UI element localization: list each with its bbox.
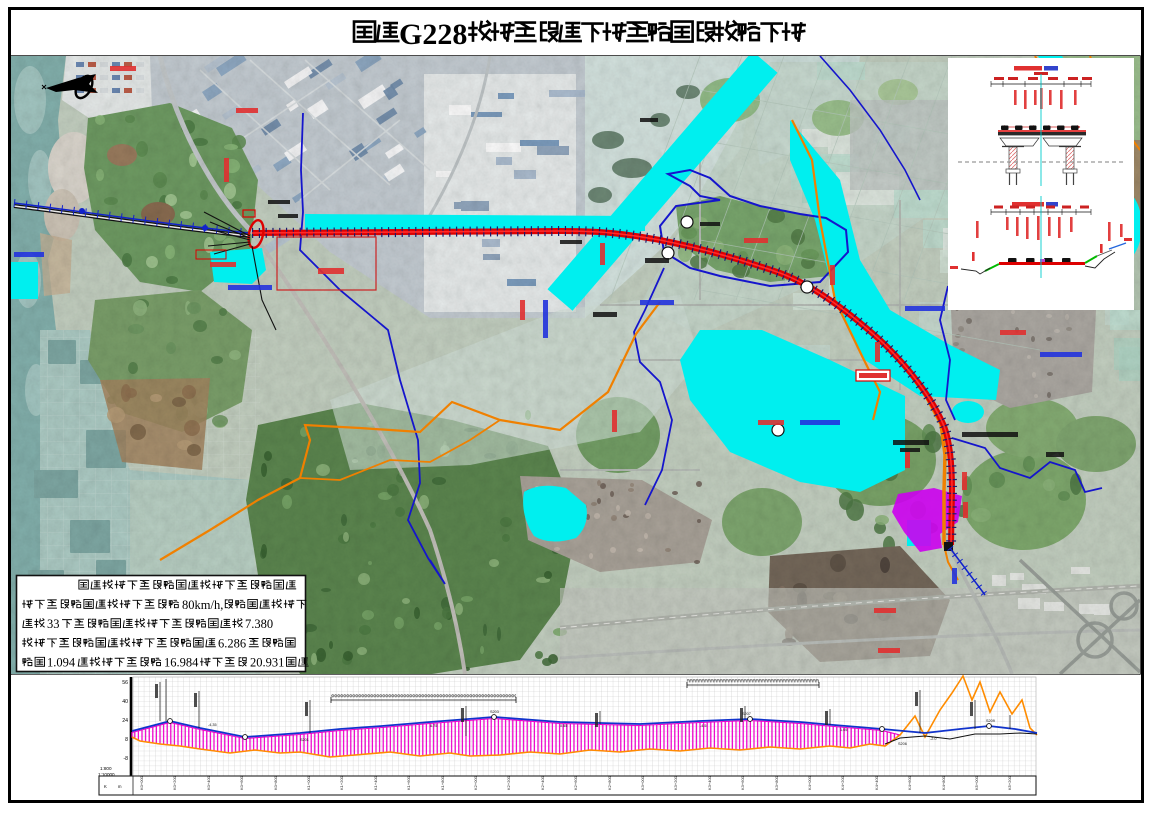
- svg-text:K1+600: K1+600: [406, 775, 411, 790]
- svg-text:K1+800: K1+800: [440, 775, 445, 790]
- svg-text:K5+200: K5+200: [1007, 775, 1012, 790]
- svg-text:S203: S203: [490, 710, 499, 714]
- svg-text:S201: S201: [300, 738, 309, 742]
- svg-text:K4+400: K4+400: [874, 775, 879, 790]
- svg-text:K4+800: K4+800: [941, 775, 946, 790]
- svg-text:-2.0: -2.0: [930, 737, 937, 741]
- svg-text:-8: -8: [123, 756, 128, 762]
- svg-text:K0+800: K0+800: [273, 775, 278, 790]
- svg-text:33: 33: [47, 617, 60, 631]
- svg-text:56: 56: [122, 680, 128, 686]
- svg-text:7.380: 7.380: [245, 617, 273, 631]
- svg-text:K2+400: K2+400: [540, 775, 545, 790]
- svg-text:K: K: [104, 784, 107, 789]
- svg-text:40: 40: [122, 699, 128, 705]
- svg-text:K0+000: K0+000: [139, 775, 144, 790]
- svg-text:m: m: [118, 784, 122, 789]
- svg-text:K2+800: K2+800: [607, 775, 612, 790]
- svg-text:S206: S206: [898, 742, 907, 746]
- svg-text:K0+200: K0+200: [172, 775, 177, 790]
- svg-text:K2+000: K2+000: [473, 775, 478, 790]
- svg-text:80km/h,: 80km/h,: [182, 598, 223, 612]
- svg-text:K5+000: K5+000: [974, 775, 979, 790]
- svg-text:6.286: 6.286: [218, 636, 246, 650]
- svg-text:K3+200: K3+200: [673, 775, 678, 790]
- svg-text:K0+600: K0+600: [239, 775, 244, 790]
- svg-text:6.75: 6.75: [430, 724, 437, 728]
- svg-text:K2+600: K2+600: [573, 775, 578, 790]
- svg-text:8: 8: [125, 737, 128, 743]
- svg-text:20.931: 20.931: [250, 656, 284, 670]
- svg-text:K3+400: K3+400: [707, 775, 712, 790]
- svg-text:S209: S209: [986, 719, 995, 723]
- svg-text:G228: G228: [399, 18, 467, 51]
- svg-text:K1+400: K1+400: [373, 775, 378, 790]
- svg-text:K1+000: K1+000: [306, 775, 311, 790]
- svg-text:1:800: 1:800: [100, 766, 112, 771]
- svg-text:K4+200: K4+200: [840, 775, 845, 790]
- svg-text:K2+200: K2+200: [506, 775, 511, 790]
- svg-text:K3+600: K3+600: [740, 775, 745, 790]
- svg-text:0.55: 0.55: [560, 724, 567, 728]
- svg-text:-4.5: -4.5: [700, 724, 707, 728]
- svg-text:K3+000: K3+000: [640, 775, 645, 790]
- svg-text:16.984: 16.984: [164, 656, 199, 670]
- svg-text:-4.35: -4.35: [208, 723, 217, 727]
- svg-text:K0+400: K0+400: [206, 775, 211, 790]
- svg-text:24: 24: [122, 718, 128, 724]
- svg-text:K4+000: K4+000: [807, 775, 812, 790]
- svg-text:1.094: 1.094: [47, 656, 76, 670]
- svg-text:K4+600: K4+600: [907, 775, 912, 790]
- svg-text:K3+800: K3+800: [774, 775, 779, 790]
- svg-text:K1+200: K1+200: [339, 775, 344, 790]
- svg-text:S207: S207: [742, 712, 751, 716]
- svg-text:1.05: 1.05: [840, 728, 847, 732]
